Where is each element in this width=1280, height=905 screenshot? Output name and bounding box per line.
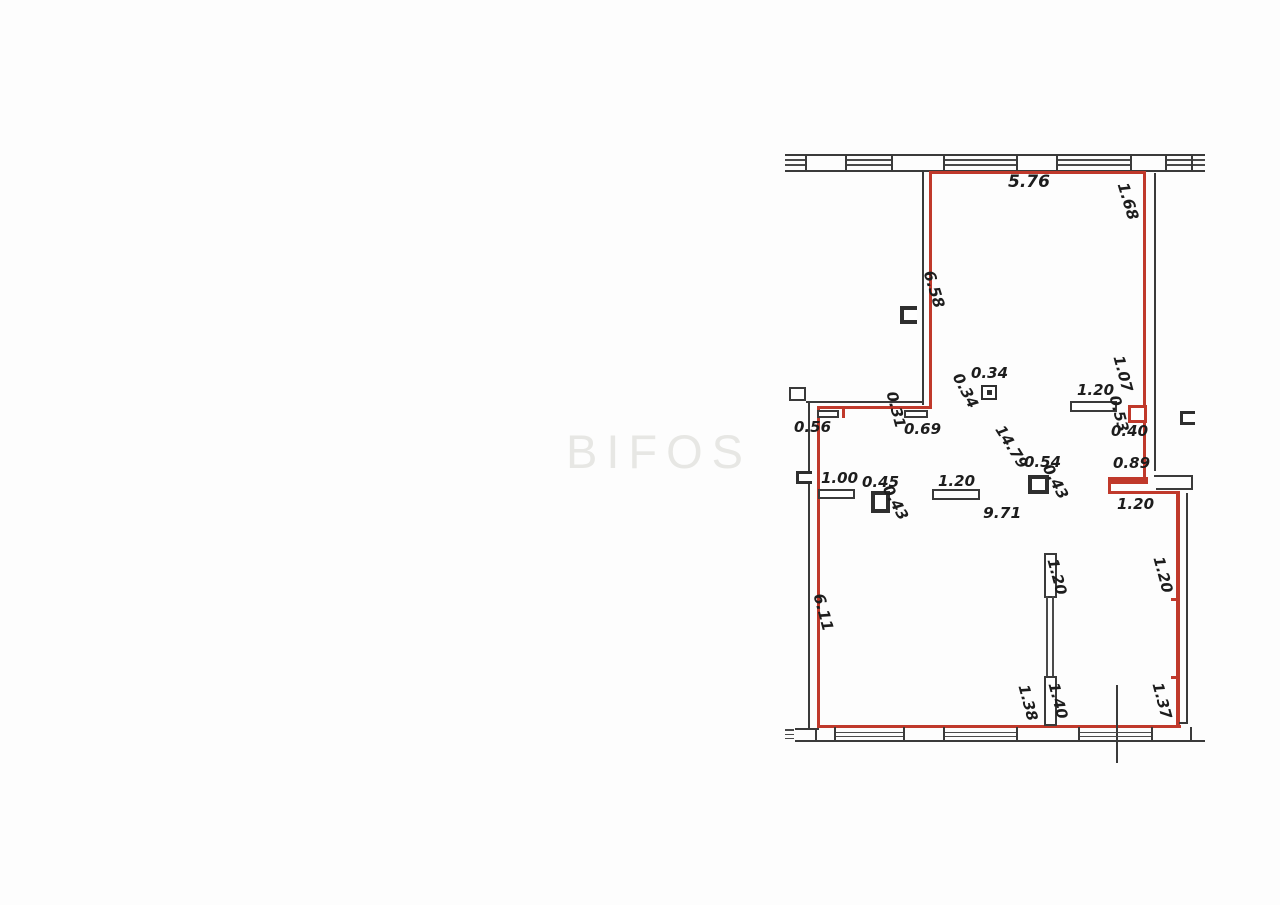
dimension-label: 1.37 — [1150, 681, 1174, 721]
column-034 — [981, 385, 997, 400]
dimension-label: 1.07 — [1111, 354, 1135, 394]
panel-door — [900, 306, 917, 324]
dimension-label: 1.20 — [1117, 497, 1154, 512]
dimension-label: 0.89 — [1113, 456, 1150, 471]
floor-plan-canvas: BIFOS — [0, 0, 1280, 905]
panel-left — [796, 471, 812, 484]
dimension-label: 1.00 — [821, 471, 858, 486]
dimension-label: 0.40 — [1111, 424, 1148, 439]
dimension-label: 0.69 — [904, 422, 941, 437]
door-leaf-056 — [817, 410, 839, 418]
wall-stub-100 — [818, 489, 855, 499]
dimension-label: 6.58 — [920, 269, 946, 310]
dimension-label: 0.34 — [971, 366, 1008, 381]
dimension-label: 1.38 — [1016, 683, 1040, 723]
door-leaf-069 — [904, 410, 928, 418]
dimension-label: 1.20 — [938, 474, 975, 489]
red-column — [1128, 405, 1147, 423]
wall-stub-120-mid — [932, 489, 980, 500]
dimension-label: 0.56 — [794, 420, 831, 435]
dimension-label: 5.76 — [1008, 174, 1050, 191]
dimension-label: 9.71 — [983, 506, 1021, 522]
dimension-label: 1.20 — [1077, 383, 1114, 398]
dimension-label: 6.11 — [810, 592, 835, 633]
dimension-label: 1.20 — [1151, 555, 1175, 595]
panel-right — [1180, 411, 1195, 425]
corner-box — [789, 387, 806, 401]
watermark-text: BIFOS — [566, 424, 752, 479]
dimension-label: 1.68 — [1114, 181, 1140, 222]
